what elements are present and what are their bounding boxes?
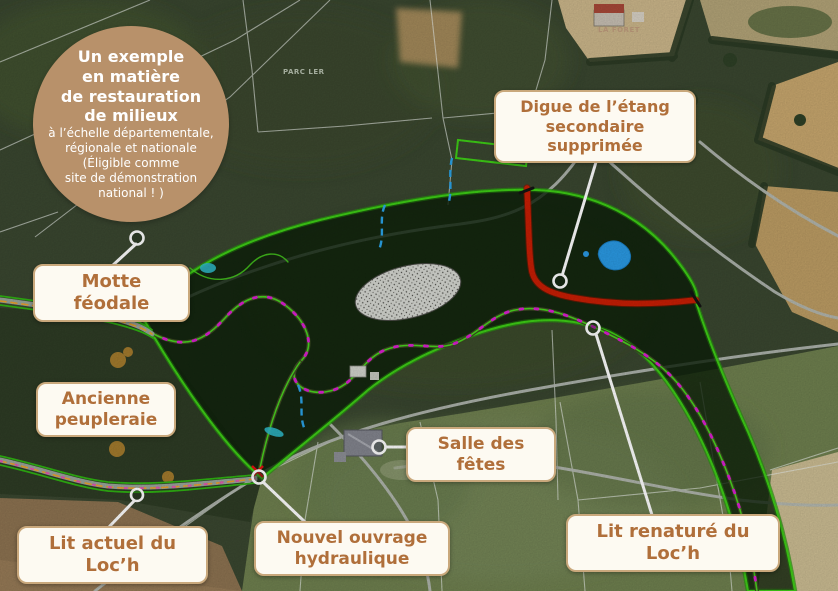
callout-nouvel-ouvrage: Nouvel ouvrage hydraulique	[254, 521, 450, 576]
callout-digue-supprimee: Digue de l’étang secondaire supprimée	[494, 90, 696, 163]
basemap-toponym-foret: LA FORET	[598, 26, 640, 34]
badge-subtitle-line: à l’échelle départementale,	[48, 126, 213, 141]
callout-motte-feodale: Motte féodale	[33, 264, 190, 322]
badge-subtitle-line: national ! )	[98, 186, 164, 201]
annotated-aerial-map: Un exemple en matière de restauration de…	[0, 0, 838, 591]
badge-title-line: de milieux	[84, 106, 178, 126]
badge-title-line: de restauration	[61, 87, 201, 107]
callout-lit-actuel: Lit actuel du Loc’h	[17, 526, 208, 584]
badge-subtitle-line: (Éligible comme	[83, 156, 180, 171]
callout-ancienne-peupleraie: Ancienne peupleraie	[36, 382, 176, 437]
callout-salle-des-fetes: Salle des fêtes	[406, 427, 556, 482]
callout-lit-renature: Lit renaturé du Loc’h	[566, 514, 780, 572]
badge-title-line: Un exemple	[78, 47, 184, 67]
basemap-toponym-parc: PARC LER	[283, 68, 325, 76]
badge-title-line: en matière	[82, 67, 180, 87]
intro-badge: Un exemple en matière de restauration de…	[33, 26, 229, 222]
badge-subtitle-line: régionale et nationale	[65, 141, 197, 156]
badge-subtitle-line: site de démonstration	[65, 171, 197, 186]
